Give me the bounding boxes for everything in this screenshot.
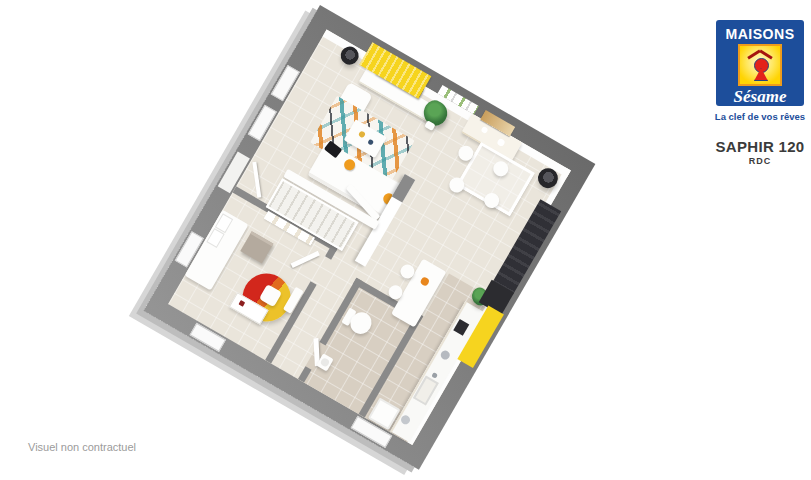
logo-brand-top: MAISONS <box>719 20 802 42</box>
logo-tagline: La clef de vos rêves <box>710 111 810 122</box>
front-door <box>252 162 261 198</box>
logo-yellow-square <box>738 44 782 86</box>
floor <box>168 30 571 446</box>
floor-level: RDC <box>710 156 810 166</box>
desk-deco-red <box>238 300 245 307</box>
page: MAISONS Sésame La clef de vos rêves SAPH… <box>0 0 811 480</box>
partition-wall-cap <box>392 174 415 203</box>
dresser-cabinet <box>240 231 273 263</box>
brand-block: MAISONS Sésame La clef de vos rêves SAPH… <box>710 20 810 166</box>
bedroom-door <box>291 251 320 268</box>
maisons-sesame-logo: MAISONS Sésame <box>716 20 804 106</box>
model-name: SAPHIR 120 <box>710 138 810 155</box>
floorplan-3d <box>144 5 596 470</box>
logo-brand-bottom: Sésame <box>716 87 804 107</box>
disclaimer-note: Visuel non contractuel <box>28 441 136 453</box>
wc-washbasin-bowl <box>320 357 331 368</box>
